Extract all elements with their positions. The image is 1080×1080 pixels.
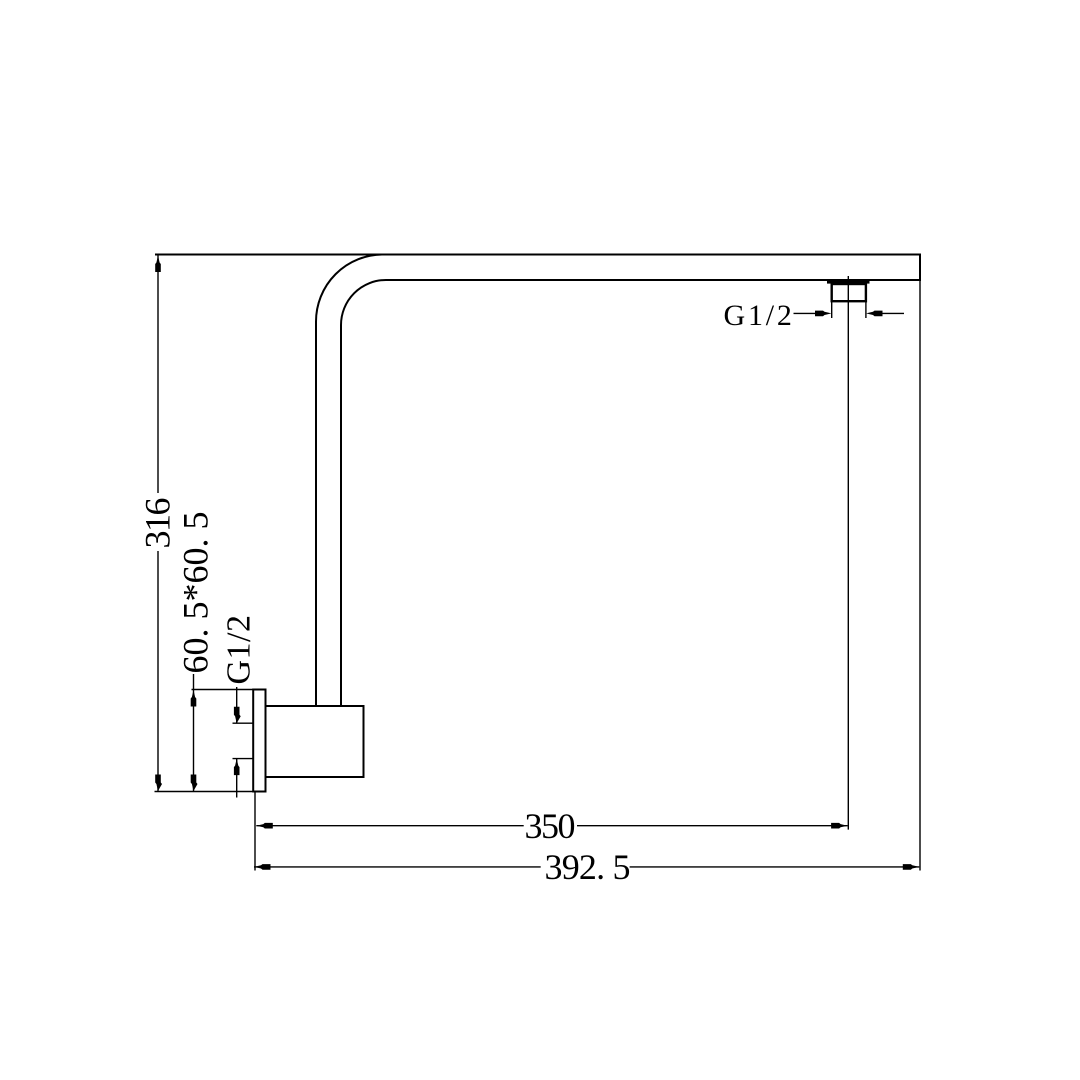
svg-text:G1/2: G1/2 [724,299,795,332]
svg-text:350: 350 [525,806,575,846]
svg-text:G1/2: G1/2 [221,615,258,685]
svg-text:392. 5: 392. 5 [545,847,630,887]
svg-text:316: 316 [138,499,178,549]
svg-text:60. 5*60. 5: 60. 5*60. 5 [176,512,216,674]
